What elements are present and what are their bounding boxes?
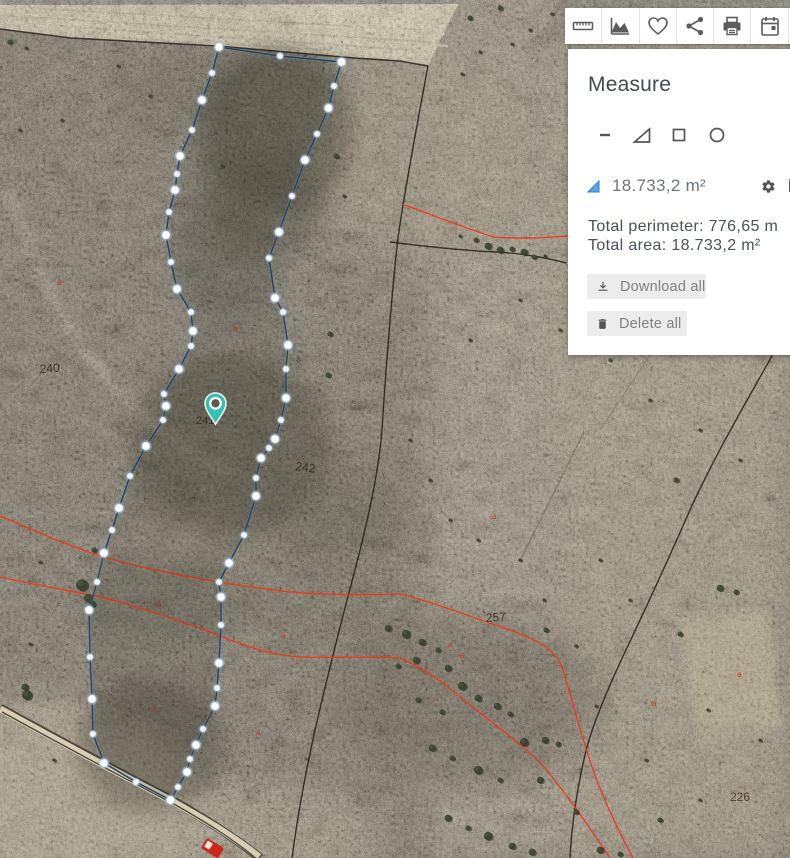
svg-text:a: a [737, 670, 742, 679]
svg-text:a: a [256, 728, 261, 737]
svg-text:a: a [492, 512, 497, 521]
svg-text:a: a [460, 651, 465, 660]
svg-text:257: 257 [485, 610, 506, 625]
svg-text:226: 226 [730, 790, 750, 804]
svg-text:a: a [448, 640, 453, 649]
svg-text:242: 242 [295, 459, 317, 476]
svg-text:240: 240 [39, 361, 60, 376]
svg-text:a: a [652, 699, 657, 708]
svg-text:a: a [57, 278, 62, 287]
svg-text:a: a [281, 631, 286, 640]
